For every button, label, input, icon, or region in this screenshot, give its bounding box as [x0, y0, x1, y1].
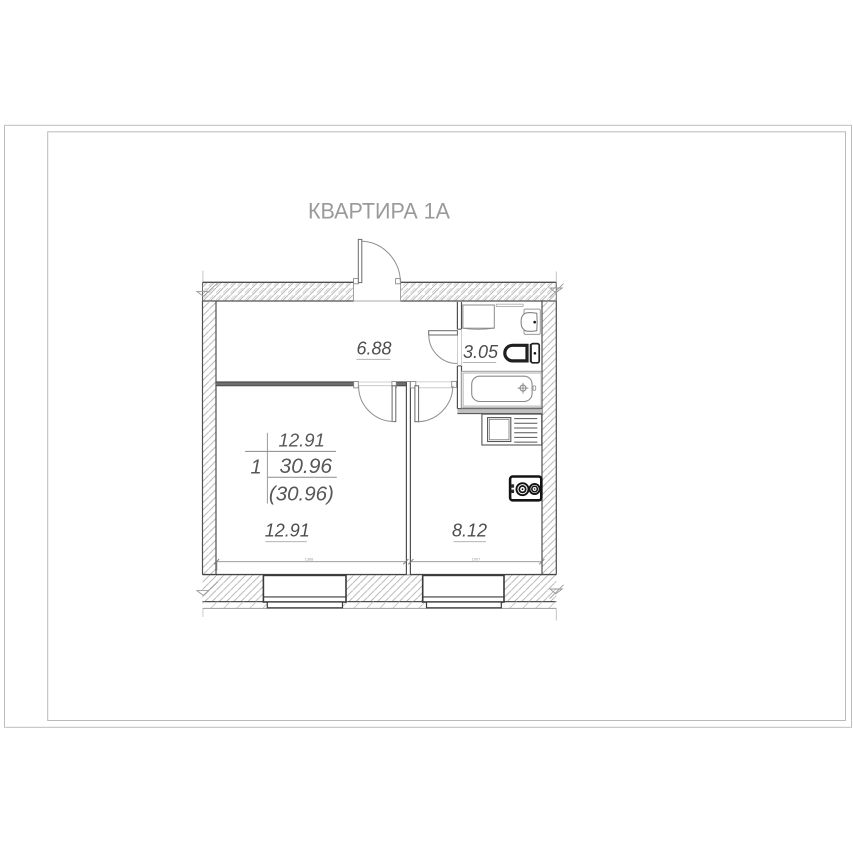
svg-text:1007: 1007: [472, 557, 480, 561]
svg-text:КВАРТИРА 1А: КВАРТИРА 1А: [308, 199, 450, 224]
svg-text:30.96: 30.96: [280, 455, 333, 478]
svg-text:6.88: 6.88: [356, 338, 391, 358]
svg-text:1: 1: [250, 457, 261, 479]
svg-text:(30.96): (30.96): [269, 482, 334, 505]
svg-text:12.91: 12.91: [265, 521, 310, 541]
svg-text:3.05: 3.05: [463, 342, 499, 362]
svg-text:1368: 1368: [305, 557, 313, 561]
svg-text:8.12: 8.12: [452, 521, 487, 541]
svg-text:12.91: 12.91: [279, 429, 325, 450]
